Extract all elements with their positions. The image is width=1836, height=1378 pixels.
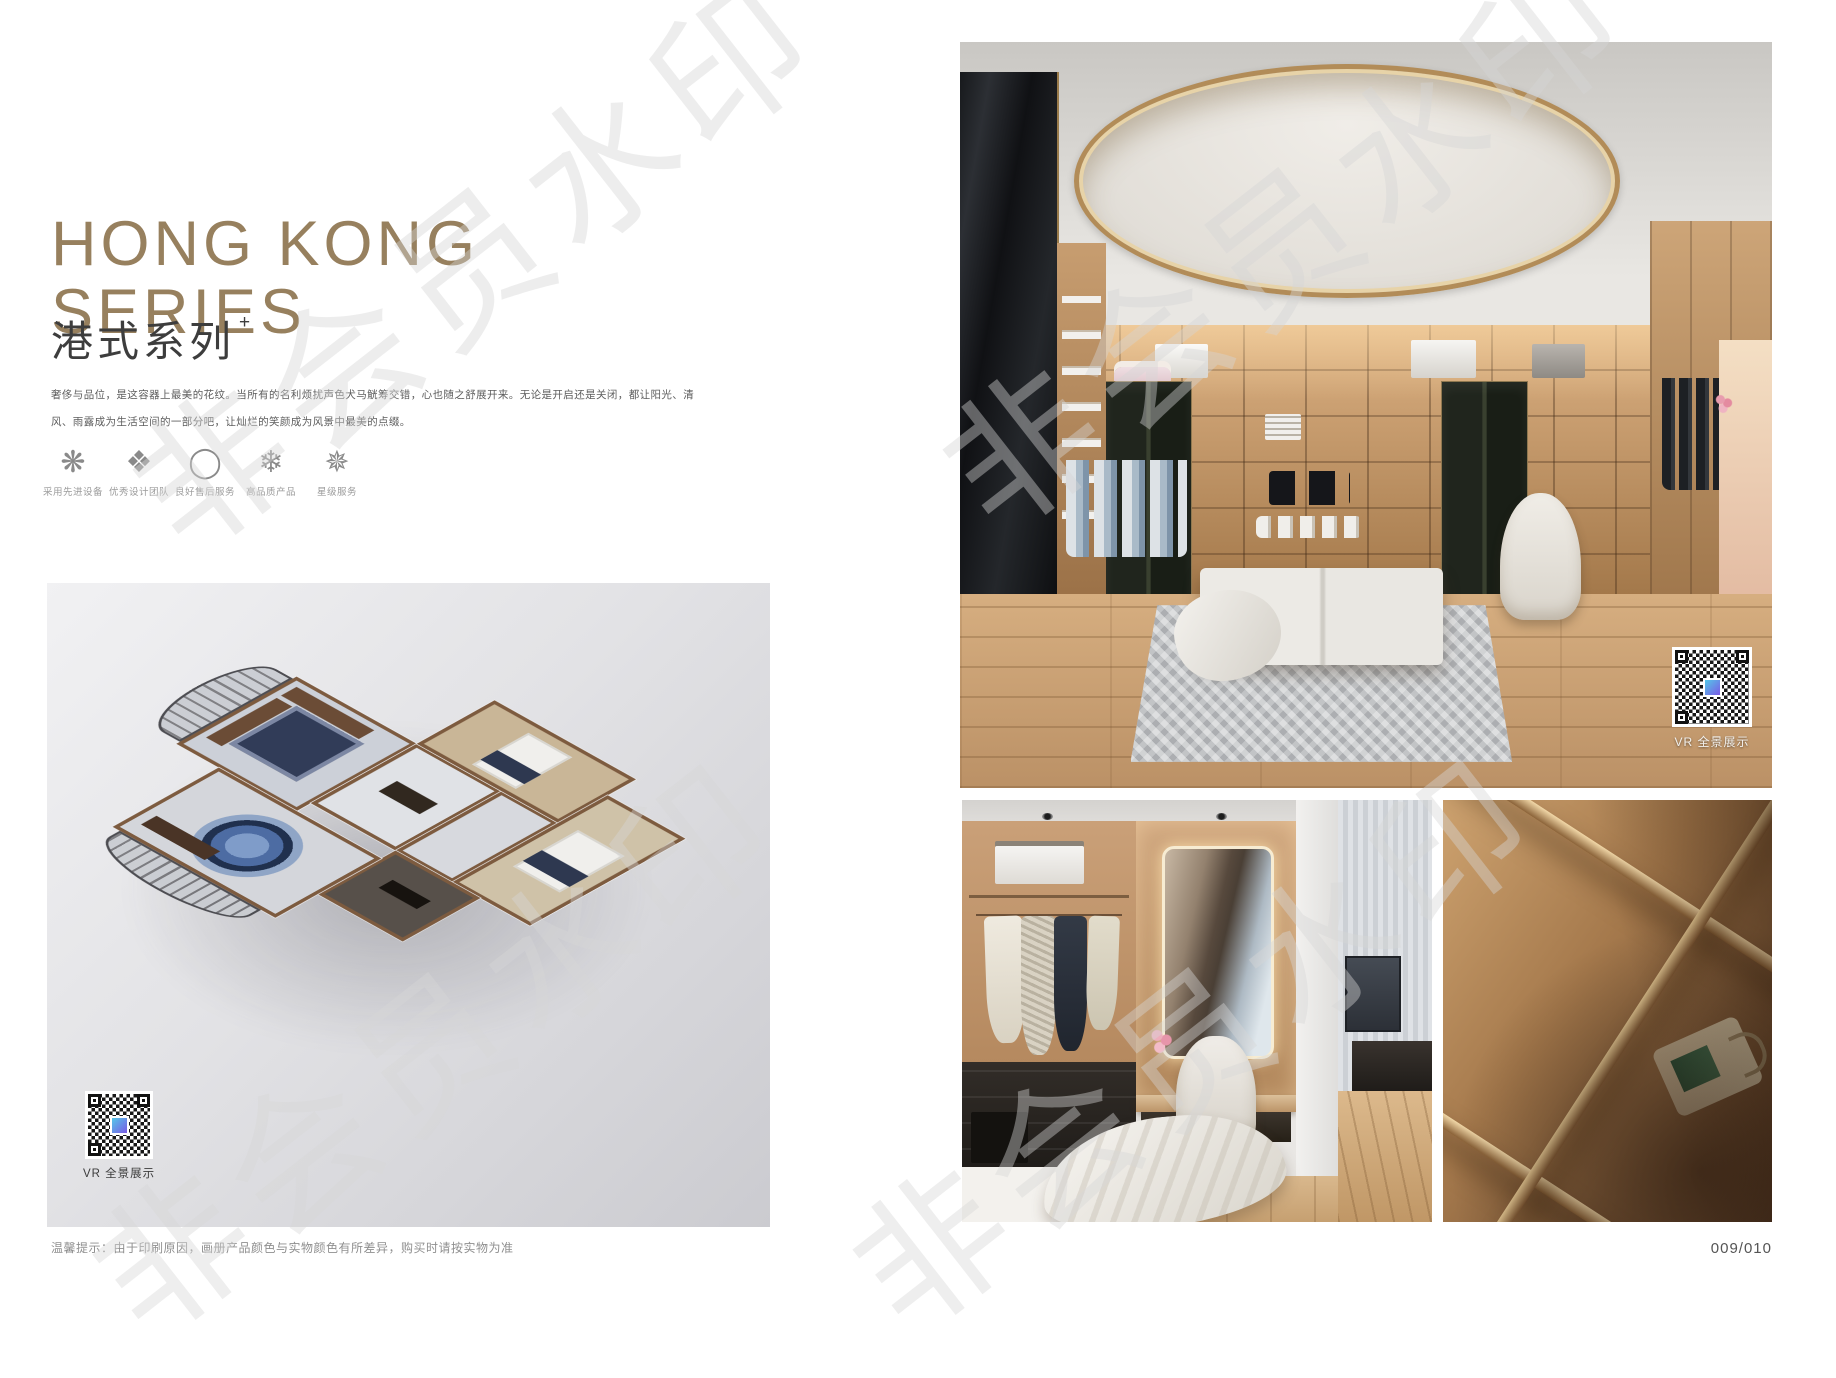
feature-label: 星级服务 bbox=[317, 484, 357, 498]
shelf-edge bbox=[969, 895, 1129, 898]
spotlight bbox=[1042, 813, 1053, 820]
bed-throw bbox=[523, 850, 589, 887]
series-description-line1: 奢侈与品位，是这容器上最美的花纹。当所有的名利烦扰声色犬马觥筹交错，心也随之舒展… bbox=[51, 382, 691, 409]
shelf-item-folded-clothes bbox=[1265, 414, 1302, 441]
feature-list: ❋ 采用先进设备 ❖ 优秀设计团队 ◯ 良好售后服务 ❄ 高品质产品 ✵ 星级服… bbox=[40, 446, 370, 498]
hallway-floor bbox=[1338, 1091, 1432, 1222]
qr-code bbox=[85, 1091, 153, 1159]
qr-finder bbox=[88, 1094, 101, 1107]
storage-box bbox=[995, 846, 1084, 884]
feature-equipment: ❋ 采用先进设备 bbox=[40, 446, 106, 498]
shelf-item-box bbox=[1532, 344, 1585, 378]
feature-after-sales: ◯ 良好售后服务 bbox=[172, 446, 238, 498]
floorplan-render: VR 全景展示 bbox=[47, 583, 770, 1227]
qr-logo bbox=[110, 1116, 129, 1135]
pink-flowers bbox=[1148, 1028, 1174, 1058]
tall-glass-wardrobe bbox=[960, 72, 1059, 609]
series-description: 奢侈与品位，是这容器上最美的花纹。当所有的名利烦扰声色犬马觥筹交错，心也随之舒展… bbox=[51, 382, 691, 436]
feature-design-team: ❖ 优秀设计团队 bbox=[106, 446, 172, 498]
qr-finder bbox=[1736, 650, 1749, 663]
shelf-item-box bbox=[1411, 340, 1476, 377]
feature-label: 良好售后服务 bbox=[175, 484, 235, 498]
qr-logo bbox=[1703, 678, 1722, 697]
hanging-garment bbox=[1021, 916, 1056, 1055]
dressing-area-photo bbox=[962, 800, 1432, 1222]
shelf-item-handbags bbox=[1269, 471, 1350, 505]
lit-mirror bbox=[1162, 846, 1274, 1059]
dark-box bbox=[971, 1112, 1027, 1163]
hanging-garment bbox=[1085, 916, 1120, 1031]
vr-panorama-label: VR 全景展示 bbox=[1674, 733, 1749, 750]
star-crown-icon: ✵ bbox=[324, 446, 349, 480]
spotlight bbox=[1216, 813, 1227, 820]
feature-label: 优秀设计团队 bbox=[109, 484, 169, 498]
vr-panorama-label: VR 全景展示 bbox=[83, 1165, 155, 1181]
shadow-vignette bbox=[1443, 800, 1772, 1222]
catalog-page: HONG KONG SERIES 港式系列+ 奢侈与品位，是这容器上最美的花纹。… bbox=[0, 0, 1836, 1307]
hanging-shirts bbox=[1066, 460, 1188, 557]
bed-throw bbox=[480, 750, 541, 784]
hanging-garment bbox=[1054, 916, 1087, 1051]
pink-flowers bbox=[1715, 393, 1733, 415]
qr-finder bbox=[1675, 711, 1688, 724]
series-description-line2: 风、雨露成为生活空间的一部分吧，让灿烂的笑颜成为风景中最美的点缀。 bbox=[51, 409, 691, 436]
white-pillar bbox=[1296, 800, 1338, 1192]
ornament-diamond-icon: ❖ bbox=[126, 446, 153, 480]
series-title-cn: 港式系列+ bbox=[51, 308, 254, 369]
study-desk bbox=[379, 880, 431, 909]
pinwheel-flower-icon: ❋ bbox=[60, 446, 85, 480]
floorplan-vr-qr: VR 全景展示 bbox=[83, 1091, 155, 1181]
print-disclaimer: 温馨提示：由于印刷原因，画册产品颜色与实物颜色有所差异，购买时请按实物为准 bbox=[51, 1239, 514, 1256]
main-photo-vr-qr: VR 全景展示 bbox=[1672, 647, 1752, 750]
qr-finder bbox=[137, 1094, 150, 1107]
main-closet-photo: VR 全景展示 bbox=[960, 42, 1772, 788]
dining-table bbox=[379, 781, 438, 814]
bed bbox=[472, 733, 572, 789]
feature-label: 高品质产品 bbox=[246, 484, 296, 498]
qr-finder bbox=[88, 1143, 101, 1156]
series-title-en-line1: HONG KONG bbox=[51, 209, 479, 279]
series-title-cn-text: 港式系列 bbox=[51, 318, 235, 365]
shelf-closeup-photo bbox=[1443, 800, 1772, 1222]
feature-star-service: ✵ 星级服务 bbox=[304, 446, 370, 498]
qr-code bbox=[1672, 647, 1752, 727]
snowflake-icon: ❄ bbox=[258, 446, 283, 480]
feature-label: 采用先进设备 bbox=[43, 484, 103, 498]
shelf-item-towel-rolls bbox=[1256, 516, 1362, 538]
ring-icon: ◯ bbox=[188, 446, 222, 480]
feature-quality: ❄ 高品质产品 bbox=[238, 446, 304, 498]
dark-sideboard bbox=[1352, 1041, 1432, 1094]
qr-finder bbox=[1675, 650, 1688, 663]
title-plus-mark: + bbox=[239, 312, 254, 333]
page-number: 009/010 bbox=[1572, 1240, 1772, 1257]
gold-ceiling-ring bbox=[1074, 64, 1620, 298]
wall-art-frame bbox=[1345, 956, 1401, 1032]
vanity-niche bbox=[1719, 340, 1772, 601]
